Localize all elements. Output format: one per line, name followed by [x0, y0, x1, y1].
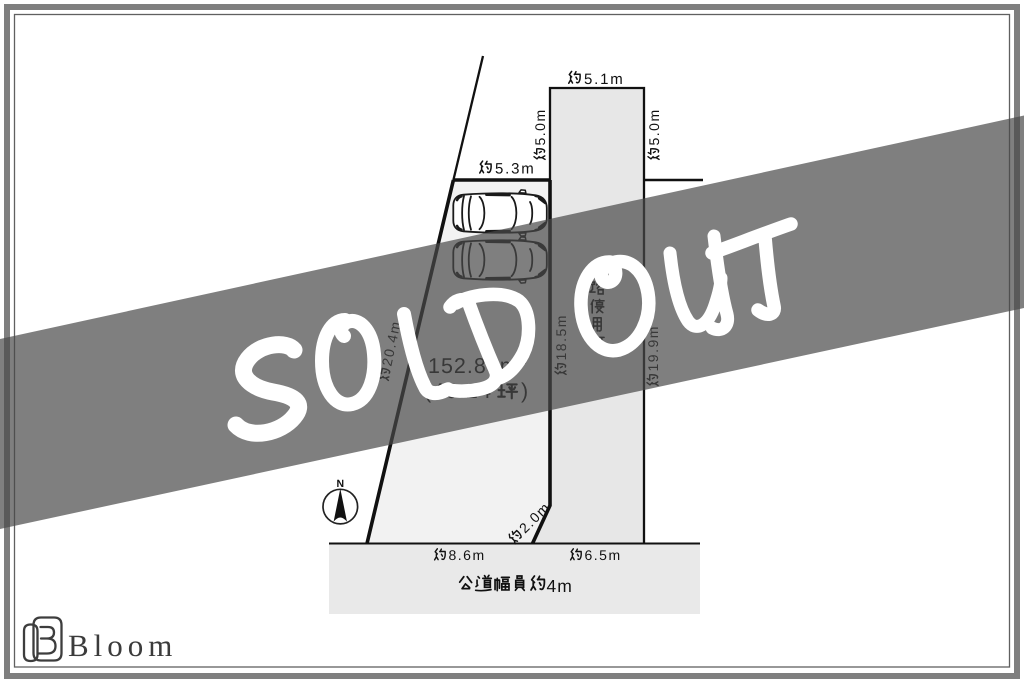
svg-text:N: N [337, 478, 345, 490]
svg-text:4m: 4m [547, 576, 573, 596]
svg-text:5.3m: 5.3m [495, 161, 536, 178]
svg-text:Bloom: Bloom [68, 628, 177, 663]
svg-text:5.1m: 5.1m [584, 71, 625, 88]
svg-text:8.6m: 8.6m [449, 547, 486, 563]
svg-text:6.5m: 6.5m [585, 547, 622, 563]
svg-text:5.0m: 5.0m [646, 108, 662, 145]
svg-text:5.0m: 5.0m [532, 108, 548, 145]
